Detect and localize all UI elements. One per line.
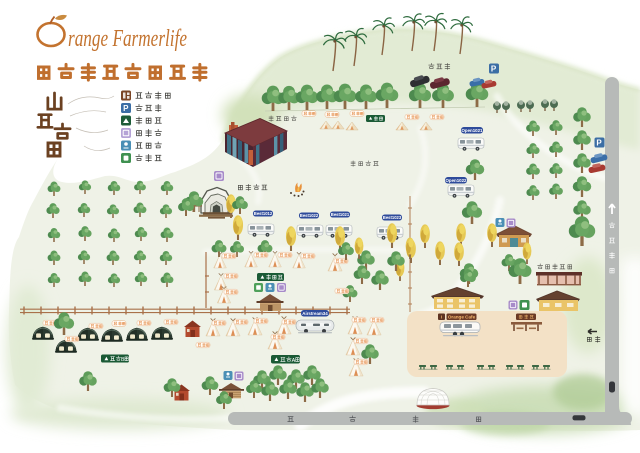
- svg-text:P: P: [123, 104, 129, 113]
- svg-text:A: A: [292, 358, 296, 364]
- svg-text:Open1021: Open1021: [462, 128, 484, 133]
- svg-text:Best1022: Best1022: [300, 213, 319, 218]
- svg-text:i: i: [441, 315, 442, 321]
- svg-text:B: B: [121, 357, 125, 363]
- svg-text:Orange Cafe: Orange Cafe: [448, 315, 476, 320]
- svg-text:Best1021: Best1021: [331, 212, 350, 217]
- svg-text:Open1022: Open1022: [446, 178, 468, 183]
- svg-text:Best1012: Best1012: [254, 211, 273, 216]
- svg-text:range Farmerlife: range Farmerlife: [68, 26, 187, 52]
- svg-text:P: P: [491, 65, 497, 74]
- svg-text:Best1023: Best1023: [383, 215, 402, 220]
- svg-text:P: P: [596, 139, 602, 148]
- svg-text:Airstream34: Airstream34: [302, 311, 328, 316]
